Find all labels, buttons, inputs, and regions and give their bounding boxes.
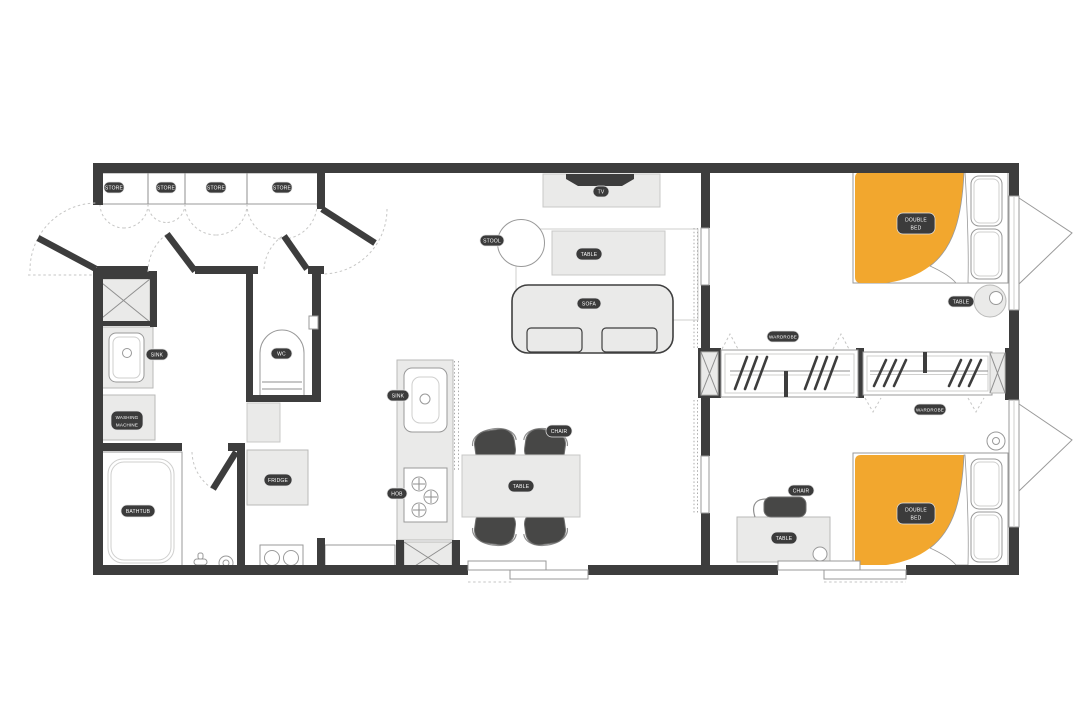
bedroom-2: [737, 432, 1008, 570]
svg-text:DOUBLE: DOUBLE: [905, 218, 927, 224]
window-bottom-dining: [468, 561, 588, 582]
wc-room: [260, 330, 304, 397]
desk-chair: [764, 497, 806, 517]
label-stool: STOOL: [480, 235, 504, 246]
label-table-desk: TABLE: [771, 532, 797, 544]
desk-lamp: [813, 547, 827, 561]
label-fridge: FRIDGE: [264, 474, 292, 486]
label-wc: WC: [271, 348, 292, 359]
sink-drain: [123, 349, 132, 358]
label-double-bed-1: DOUBLEBED: [897, 213, 935, 234]
svg-text:SOFA: SOFA: [582, 302, 597, 308]
svg-text:WASHING: WASHING: [116, 415, 139, 420]
svg-text:BED: BED: [911, 516, 922, 522]
wardrobe-2: [863, 352, 1005, 412]
label-store-1: STORE: [104, 182, 124, 193]
pillow: [971, 512, 1002, 562]
svg-text:STORE: STORE: [105, 186, 124, 192]
hob: [404, 468, 447, 522]
pillow: [971, 459, 1002, 509]
label-bathtub: BATHTUB: [121, 505, 155, 517]
svg-text:SINK: SINK: [392, 394, 405, 400]
svg-text:STORE: STORE: [273, 186, 292, 192]
label-sink-kitchen: SINK: [387, 390, 409, 401]
label-store-3: STORE: [206, 182, 226, 193]
shower-room-door: [148, 234, 195, 272]
window-swing: [1019, 198, 1072, 284]
stool: [498, 220, 545, 267]
svg-text:SINK: SINK: [151, 353, 164, 359]
label-store-2: STORE: [156, 182, 176, 193]
floor-plan-page: STORE STORE STORE STORE SINK WASHINGMACH…: [0, 0, 1080, 720]
svg-text:HOB: HOB: [391, 492, 403, 498]
label-table-coffee: TABLE: [576, 248, 602, 260]
svg-text:STOOL: STOOL: [483, 239, 501, 245]
label-table-bedside: TABLE: [948, 296, 974, 307]
store-door-arcs: [100, 204, 317, 239]
kitchen-shelf: [247, 403, 280, 442]
label-chair-desk: CHAIR: [788, 485, 814, 496]
svg-text:BATHTUB: BATHTUB: [126, 509, 151, 515]
svg-text:MACHINE: MACHINE: [116, 423, 138, 428]
kitchen-sink: [404, 368, 447, 432]
label-sink-bath: SINK: [146, 349, 168, 360]
svg-text:TABLE: TABLE: [776, 536, 793, 542]
window-swing: [1019, 404, 1072, 491]
label-store-4: STORE: [272, 182, 292, 193]
pillow: [971, 229, 1002, 279]
pillow: [971, 176, 1002, 226]
svg-text:DOUBLE: DOUBLE: [905, 508, 927, 514]
svg-text:CHAIR: CHAIR: [551, 429, 568, 435]
svg-text:TV: TV: [598, 190, 605, 196]
entry-door: [28, 203, 96, 275]
svg-text:STORE: STORE: [157, 186, 176, 192]
svg-text:WARDROBE: WARDROBE: [769, 335, 797, 340]
svg-text:BED: BED: [911, 226, 922, 232]
coffee-table: [552, 231, 665, 275]
toilet: [260, 330, 304, 397]
floor-plan-drawing: STORE STORE STORE STORE SINK WASHINGMACH…: [0, 0, 1080, 720]
label-hob: HOB: [387, 488, 407, 499]
wardrobe-1: [701, 334, 858, 397]
label-tv: TV: [593, 186, 609, 197]
sliding-panel: [701, 456, 709, 513]
living-room: [498, 174, 699, 353]
label-washing-machine: WASHINGMACHINE: [111, 411, 143, 430]
svg-text:WARDROBE: WARDROBE: [916, 408, 944, 413]
label-table-dining: TABLE: [508, 480, 534, 492]
svg-text:FRIDGE: FRIDGE: [268, 478, 289, 484]
doors: [28, 203, 387, 489]
lamp: [987, 432, 1005, 450]
label-wardrobe-1: WARDROBE: [767, 331, 799, 342]
tv-icon: [566, 174, 634, 186]
wc-door-handle: [309, 316, 318, 329]
svg-text:WC: WC: [277, 352, 286, 358]
label-double-bed-2: DOUBLEBED: [897, 503, 935, 524]
svg-text:TABLE: TABLE: [581, 252, 598, 258]
svg-text:STORE: STORE: [207, 186, 226, 192]
svg-text:CHAIR: CHAIR: [793, 489, 810, 495]
sliding-panel: [701, 228, 709, 285]
bathtub-room-door: [192, 452, 236, 489]
label-chair-dining: CHAIR: [546, 425, 572, 437]
label-wardrobe-2: WARDROBE: [914, 404, 946, 415]
svg-text:TABLE: TABLE: [953, 300, 970, 306]
label-sofa: SOFA: [577, 298, 601, 309]
wc-door: [264, 235, 307, 269]
living-room-door: [322, 209, 387, 274]
bedroom-1: [853, 170, 1008, 317]
svg-text:TABLE: TABLE: [513, 484, 530, 490]
